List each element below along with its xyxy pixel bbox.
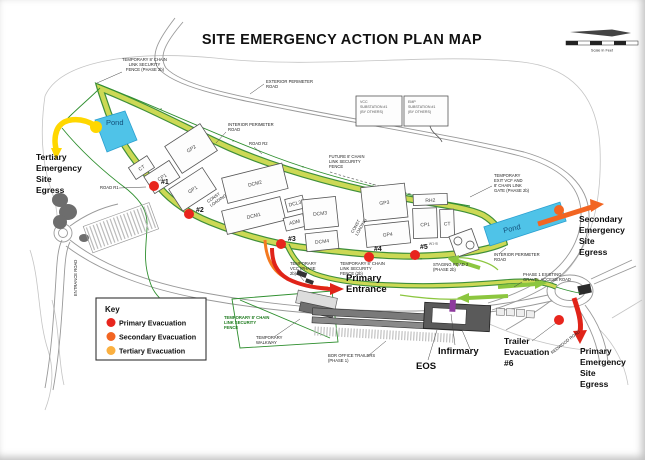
evacuation-point xyxy=(149,181,159,191)
bor-trailers-label: BOR OFFICE TRAILERS (PHASE 1) xyxy=(328,353,376,363)
tertiary-evacuation-swatch xyxy=(107,346,116,355)
eos-building xyxy=(423,298,534,334)
primary-evacuation-swatch xyxy=(107,318,116,327)
title-block: SITE EMERGENCY ACTION PLAN MAP xyxy=(202,32,482,48)
interior-road-label: INTERIOR PERIMETER ROAD xyxy=(228,122,275,132)
temp-exit-gate-label: TEMPORARY EXIT VCF AND 8' CHAIN LINK GAT… xyxy=(494,173,530,193)
key-title: Key xyxy=(105,305,120,314)
exterior-road-label: EXTERIOR PERIMETER ROAD xyxy=(266,79,314,89)
evacuation-point xyxy=(184,209,194,219)
scanned-map-page: ××× ××× Pond Pond CT CP1 GP2 GP1 DCM2 DC… xyxy=(0,0,645,460)
svg-text:SUBSTATION #1: SUBSTATION #1 xyxy=(360,105,387,109)
roundabout-structure xyxy=(577,284,592,296)
future-fence-label: FUTURE 8' CHAIN LINK SECURITY FENCE xyxy=(329,154,366,169)
key-item-label: Primary Evacuation xyxy=(119,319,186,328)
tertiary-egress-label: Tertiary Emergency Site Egress xyxy=(36,152,84,195)
point-label: #4 xyxy=(374,246,382,253)
svg-text:SUBSTATION #1: SUBSTATION #1 xyxy=(408,105,435,109)
key-box: Key Primary Evacuation Secondary Evacuat… xyxy=(96,298,206,360)
trailer-evacuation-label: Trailer Evacuation #6 xyxy=(504,336,552,368)
scale-bar: Scale in Feet xyxy=(566,30,638,53)
evacuation-point xyxy=(276,239,286,249)
point-label: #2 xyxy=(196,207,204,214)
staging-road-label: STAGING ROAD 2 (PHASE 2b) xyxy=(433,262,469,272)
svg-text:×: × xyxy=(232,138,235,143)
building-label: RH2 xyxy=(425,198,435,204)
evacuation-point xyxy=(410,250,420,260)
temp-fence-tl-label: TEMPORARY 8' CHAIN LINK SECURITY FENCE (… xyxy=(122,57,168,72)
interior-perimeter-route xyxy=(59,88,580,306)
interior-road-right-label: INTERIOR PERIMETER ROAD xyxy=(494,252,541,262)
svg-text:(BY OTHERS): (BY OTHERS) xyxy=(408,110,431,114)
pond-left-label: Pond xyxy=(106,118,124,127)
redwood-road-label: REDWOOD ROAD xyxy=(550,329,581,355)
site-map: ××× ××× Pond Pond CT CP1 GP2 GP1 DCM2 DC… xyxy=(0,0,645,460)
entrance-road-label: ENTRANCE ROAD xyxy=(73,260,78,296)
key-item-label: Secondary Evacuation xyxy=(119,333,196,342)
secondary-evacuation-swatch xyxy=(107,332,116,341)
infirmary-marker xyxy=(449,300,456,312)
eos-label: EOS xyxy=(416,361,436,372)
building-cluster-right: RH2 CP1 CT W1-B xyxy=(412,193,455,246)
parking-lot-left xyxy=(83,203,158,253)
substation-label: EMP xyxy=(408,100,416,104)
building-label: GP3 xyxy=(379,200,390,207)
primary-egress-label: Primary Emergency Site Egress xyxy=(580,346,628,389)
building-label: CP1 xyxy=(420,222,430,228)
page-title: SITE EMERGENCY ACTION PLAN MAP xyxy=(202,32,482,48)
scale-caption: Scale in Feet xyxy=(591,49,614,53)
svg-text:×: × xyxy=(302,164,305,169)
secondary-evacuation-point xyxy=(554,205,564,215)
infirmary-label: Infirmary xyxy=(438,346,479,357)
road-r1-label: ROAD R1 xyxy=(100,185,119,190)
key-item-label: Tertiary Evacuation xyxy=(119,347,185,356)
building-label: W1-B xyxy=(429,242,439,246)
temp-fence-green-label: TEMPORARY 8' CHAIN LINK SECURITY FENCE xyxy=(224,315,271,330)
point-label: #3 xyxy=(288,236,296,243)
pond-right xyxy=(484,202,566,246)
building-label: GP4 xyxy=(382,232,393,239)
building-label: CT xyxy=(444,221,451,227)
point-label: #1 xyxy=(161,179,169,186)
building-cluster-right-center: DCM3 DCM4 GP3 GP4 xyxy=(301,183,411,254)
temp-walkway-label: TEMPORARY WALKWAY xyxy=(256,335,284,345)
gravel-road-label: PHASE 1 EXISTING GRAVEL ACCESS ROAD xyxy=(523,272,571,282)
road-r2-label: ROAD R2 xyxy=(249,141,268,146)
svg-text:(BY OTHERS): (BY OTHERS) xyxy=(360,110,383,114)
secondary-egress-label: Secondary Emergency Site Egress xyxy=(579,214,627,257)
primary-entrance-label: Primary Entrance xyxy=(346,273,387,295)
point-label: #5 xyxy=(420,244,428,251)
north-pointer xyxy=(570,30,631,37)
substations: VCC SUBSTATION #1 (BY OTHERS) EMP SUBSTA… xyxy=(356,96,448,142)
graphic-scale xyxy=(566,41,638,45)
substation-label: VCC xyxy=(360,100,368,104)
